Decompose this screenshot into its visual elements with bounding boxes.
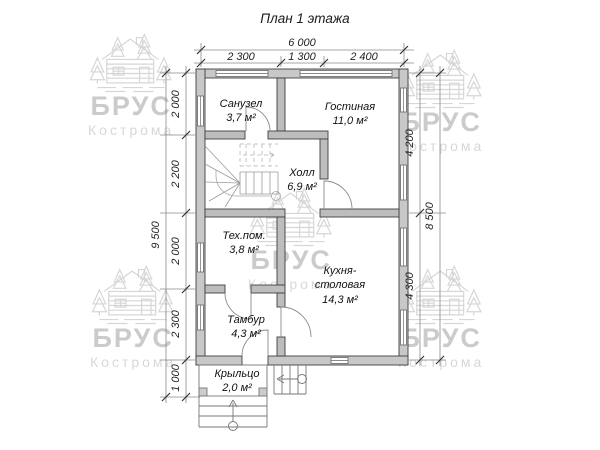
- room-area: 3,7 м²: [204, 111, 278, 125]
- dim-left-seg-1: 2 000: [170, 72, 184, 136]
- dim-top-total: 6 000: [272, 37, 332, 49]
- room-label-holl: Холл 6,9 м²: [276, 166, 328, 195]
- room-label-kuhnya: Кухня- столовая 14,3 м²: [292, 264, 388, 307]
- dim-right-seg-1: 4 200: [404, 111, 418, 175]
- dim-right-total: 8 500: [424, 184, 438, 248]
- floor-plan-page: БРУС Кострома БРУС Кострома БРУС Костром…: [0, 0, 600, 450]
- dim-top-seg-1: 2 300: [211, 51, 271, 63]
- room-area: 3,8 м²: [207, 243, 281, 257]
- dim-right-seg-2: 4 300: [404, 254, 418, 318]
- room-name: Тех.пом.: [207, 229, 281, 243]
- room-name: Холл: [276, 166, 328, 180]
- room-name: Тамбур: [208, 313, 284, 327]
- room-name: Гостиная: [300, 100, 400, 114]
- dim-top-seg-2: 1 300: [272, 51, 332, 63]
- dim-top-seg-3: 2 400: [334, 51, 394, 63]
- staircase-walk-line: [216, 170, 281, 201]
- room-name: Крыльцо: [200, 367, 274, 381]
- room-name: Кухня-: [292, 264, 388, 278]
- room-label-krylco: Крыльцо 2,0 м²: [200, 367, 274, 396]
- page-title: План 1 этажа: [200, 11, 410, 26]
- floor-plan-drawing: [0, 0, 600, 450]
- dim-left-seg-5: 1 000: [170, 346, 184, 410]
- staircase-upper-flight: [240, 144, 278, 166]
- room-area: 2,0 м²: [200, 381, 274, 395]
- dim-left-seg-2: 2 200: [170, 142, 184, 206]
- room-area: 4,3 м²: [208, 327, 284, 341]
- dim-left-total: 9 500: [150, 203, 164, 267]
- room-area: 14,3 м²: [292, 293, 388, 307]
- room-name: Санузел: [204, 97, 278, 111]
- room-label-tehpom: Тех.пом. 3,8 м²: [207, 229, 281, 258]
- room-label-sanuzel: Санузел 3,7 м²: [204, 97, 278, 126]
- room-label-tambur: Тамбур 4,3 м²: [208, 313, 284, 342]
- room-label-gostinaya: Гостиная 11,0 м²: [300, 100, 400, 129]
- room-name-2: столовая: [292, 278, 388, 292]
- room-area: 6,9 м²: [276, 180, 328, 194]
- side-steps: [274, 365, 307, 394]
- room-area: 11,0 м²: [300, 114, 400, 128]
- dim-left-seg-3: 2 000: [170, 219, 184, 283]
